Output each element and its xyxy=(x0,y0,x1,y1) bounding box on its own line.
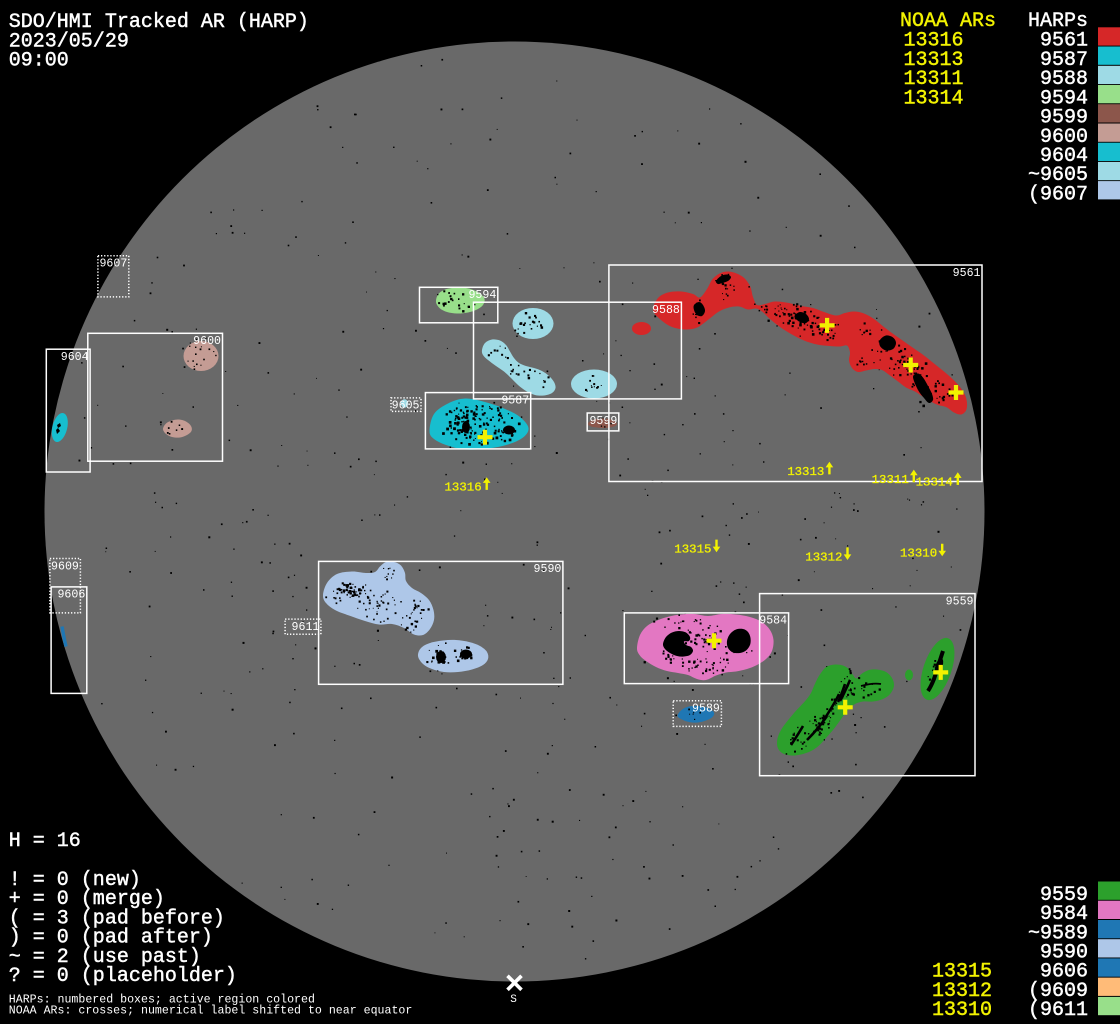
svg-text:9590: 9590 xyxy=(534,563,562,576)
svg-text:13314: 13314 xyxy=(916,476,953,490)
svg-text:S: S xyxy=(510,994,517,1006)
svg-text:9600: 9600 xyxy=(193,335,221,348)
svg-text:9588: 9588 xyxy=(652,304,680,317)
svg-text:9609: 9609 xyxy=(51,560,79,573)
svg-text:9599: 9599 xyxy=(589,415,617,428)
svg-text:9611: 9611 xyxy=(292,621,320,634)
svg-text:13310: 13310 xyxy=(932,999,992,1022)
svg-text:13312: 13312 xyxy=(805,550,842,564)
svg-text:9584: 9584 xyxy=(759,615,787,628)
svg-text:13313: 13313 xyxy=(787,465,824,479)
svg-text:9605: 9605 xyxy=(392,400,420,413)
svg-text:9607: 9607 xyxy=(99,258,127,271)
svg-text:9589: 9589 xyxy=(692,703,720,716)
svg-text:13315: 13315 xyxy=(674,543,711,557)
svg-text:9559: 9559 xyxy=(946,595,974,608)
svg-text:9561: 9561 xyxy=(953,267,981,280)
svg-text:13316: 13316 xyxy=(445,481,482,495)
svg-text:9587: 9587 xyxy=(501,394,529,407)
svg-text:? = 0 (placeholder): ? = 0 (placeholder) xyxy=(9,965,237,988)
svg-text:13311: 13311 xyxy=(872,473,909,487)
svg-text:H = 16: H = 16 xyxy=(9,830,81,853)
svg-text:09:00: 09:00 xyxy=(9,50,69,73)
svg-text:(9611: (9611 xyxy=(1028,999,1088,1022)
svg-text:9604: 9604 xyxy=(61,351,89,364)
svg-text:13314: 13314 xyxy=(904,87,964,110)
svg-text:9594: 9594 xyxy=(468,289,496,302)
svg-text:NOAA ARs: crosses; numerical l: NOAA ARs: crosses; numerical label shift… xyxy=(9,1004,413,1017)
svg-text:13310: 13310 xyxy=(900,547,937,561)
svg-text:9606: 9606 xyxy=(57,589,85,602)
svg-text:(9607: (9607 xyxy=(1028,183,1088,206)
